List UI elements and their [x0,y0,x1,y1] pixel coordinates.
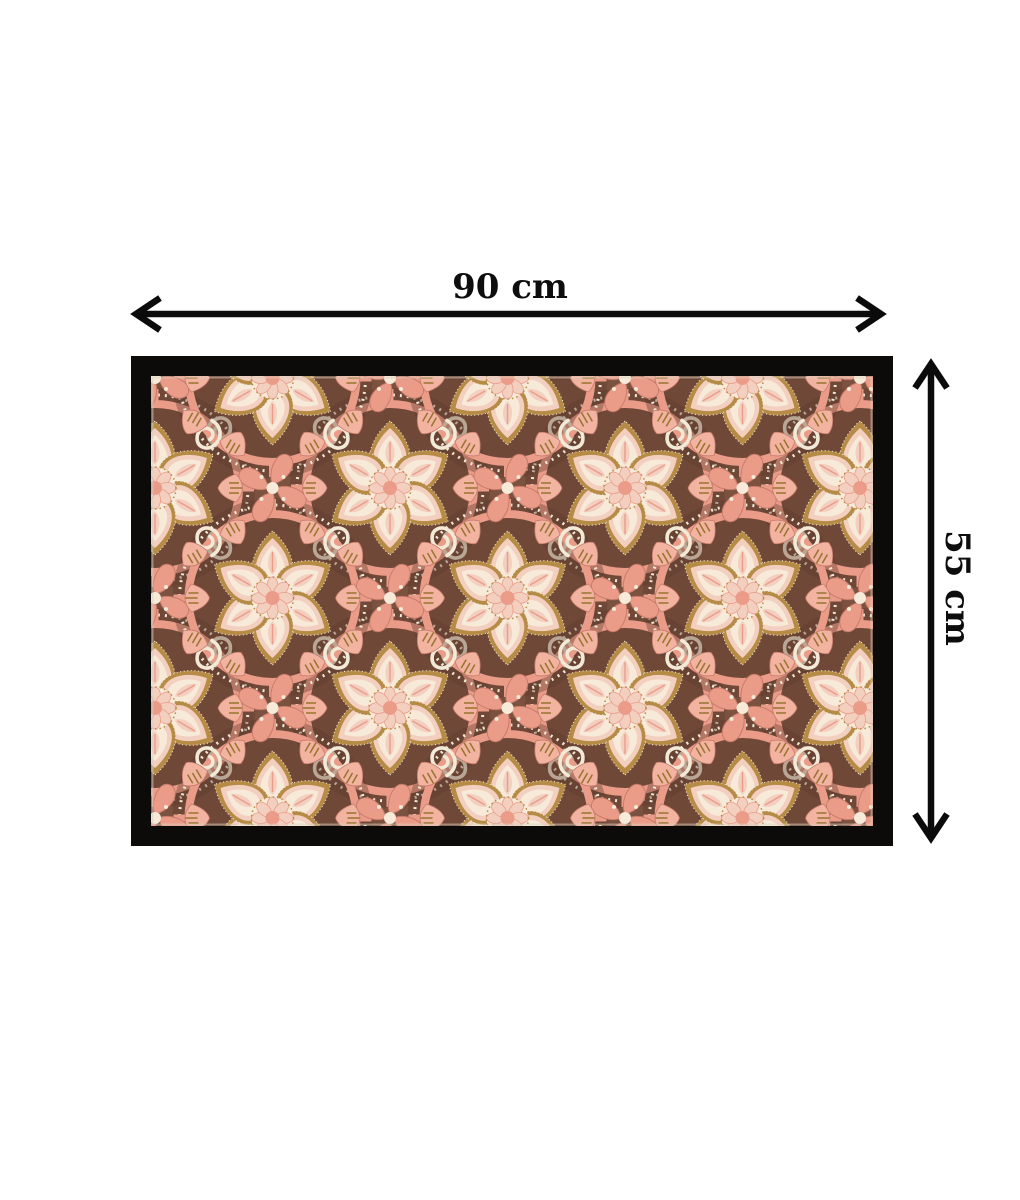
doormat-image [131,356,893,846]
product-dimension-diagram: 90 cm 55 cm [0,0,1020,1200]
height-dimension-label: 55 cm [940,530,974,646]
width-dimension-label: 90 cm [452,270,568,304]
doormat-pattern [151,376,873,826]
